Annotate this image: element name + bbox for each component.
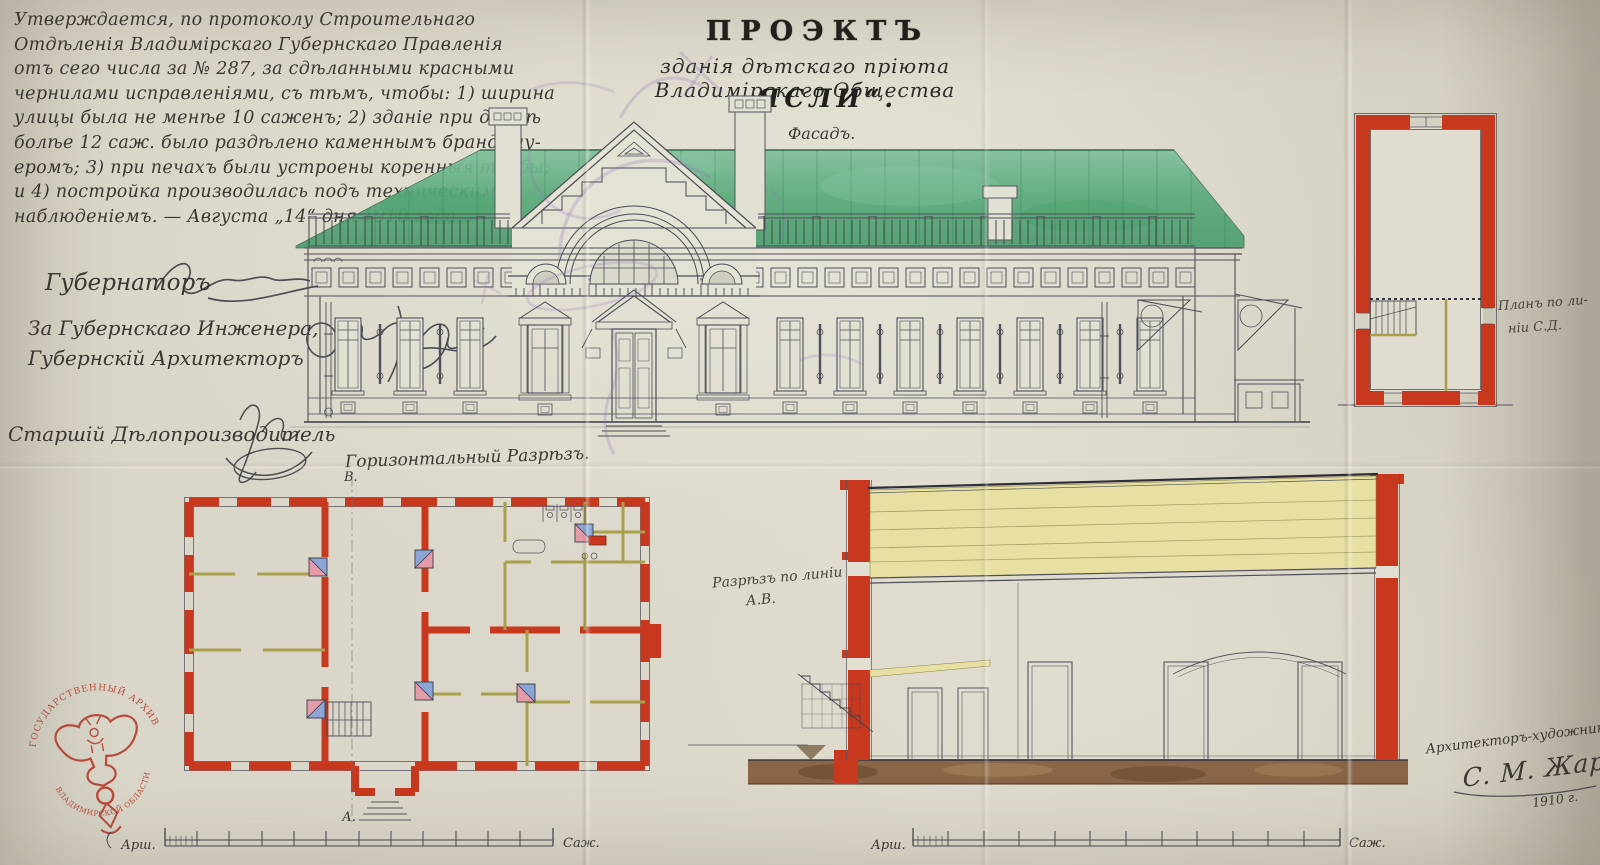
side-plan-drawing — [1338, 103, 1513, 418]
side-plan-interior — [1368, 127, 1483, 393]
facade-window — [1134, 318, 1166, 395]
plan-porch — [355, 766, 415, 820]
archival-drawing-sheet: Утверждается, по протоколу Строительнаго… — [0, 0, 1600, 865]
scale-bars: Арш. Саж. Арш. Саж. — [95, 818, 1405, 863]
side-plan-label-line2: ніи С.Д. — [1508, 318, 1563, 337]
colonnette — [1057, 324, 1063, 384]
under-window-panel — [1083, 402, 1097, 413]
scale-left-start-label: Арш. — [120, 838, 156, 853]
facade-window — [954, 318, 986, 395]
archive-stamp: ГОСУДАРСТВЕННЫЙ АРХИВ ВЛАДИМИРСКОЙ ОБЛАС… — [28, 636, 178, 841]
engineer-label-line1: За Губернскаго Инженера, — [28, 316, 318, 340]
facade-window — [332, 318, 364, 395]
colonnette — [997, 324, 1003, 384]
colonnette — [1117, 324, 1123, 384]
colonnette — [937, 324, 943, 384]
scale-left-end-label: Саж. — [563, 836, 600, 851]
plan-bay — [645, 624, 661, 658]
approval-line: Утверждается, по протоколу Строительнаго — [14, 8, 494, 33]
under-window-panel — [1023, 402, 1037, 413]
section-interior — [870, 583, 1376, 760]
section-attic — [868, 474, 1378, 583]
engineer-label-line2: Губернскій Архитекторъ — [28, 346, 304, 370]
facade-window — [1014, 318, 1046, 395]
scale-bar-right — [913, 828, 1340, 846]
under-window-panel — [341, 402, 355, 413]
scale-bar-left — [107, 828, 553, 848]
floor-plan-drawing — [175, 462, 675, 834]
stamp-arc-top-text: ГОСУДАРСТВЕННЫЙ АРХИВ — [20, 673, 161, 750]
scale-right-end-label: Саж. — [1349, 836, 1386, 851]
scale-right-start-label: Арш. — [870, 838, 906, 853]
under-window-panel — [963, 402, 977, 413]
stove-symbols — [307, 524, 593, 718]
plan-staircase — [327, 702, 371, 736]
facade-window — [1074, 318, 1106, 395]
under-window-panel — [1143, 402, 1157, 413]
section-drawing — [680, 462, 1425, 797]
violet-stamp-traces — [380, 30, 920, 460]
